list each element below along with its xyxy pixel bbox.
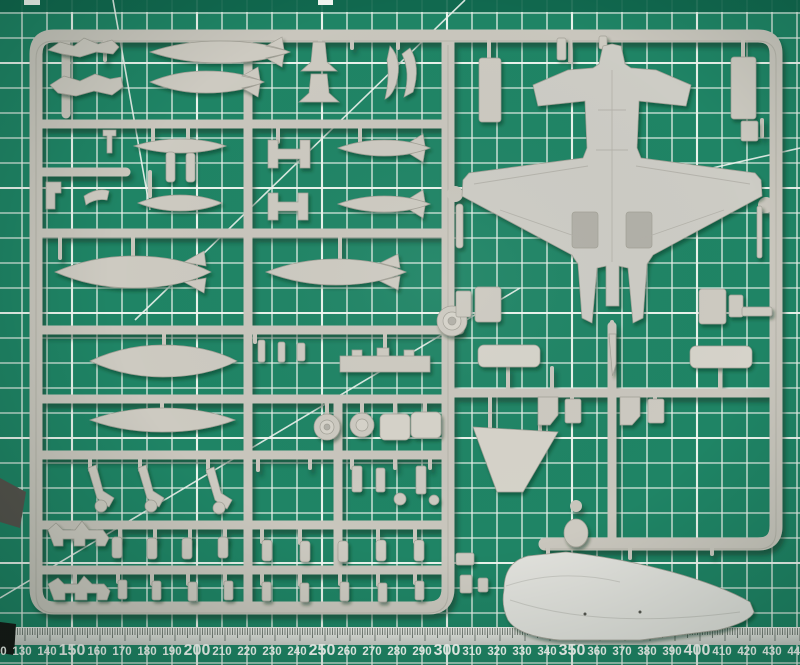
fuselage-rivet-dot <box>639 611 642 614</box>
scale-number: 290 <box>412 646 431 658</box>
scale-number: 200 <box>184 642 211 659</box>
detail-strut-a <box>352 466 362 492</box>
detail-part-f <box>300 541 310 562</box>
scale-number: 310 <box>462 646 481 658</box>
scale-number: 410 <box>712 646 731 658</box>
scale-number: 280 <box>387 646 406 658</box>
aircraft-cockpit-recess-left <box>572 212 598 248</box>
mat-edge-mark <box>24 0 40 5</box>
detail-part-k <box>152 581 161 600</box>
detail-part-l <box>188 582 197 601</box>
detail-part-e <box>262 540 272 561</box>
wheel-b-rim <box>356 419 368 431</box>
scale-number: 180 <box>137 646 156 658</box>
scale-number: 230 <box>262 646 281 658</box>
strut-row-a <box>258 340 265 362</box>
bracket-left-a <box>456 291 471 317</box>
bracket-right-arm <box>742 307 772 316</box>
small-wheel-b <box>429 495 439 505</box>
scale-number: 440 <box>787 646 800 658</box>
scale-number: 240 <box>287 646 306 658</box>
intake-left <box>478 345 540 367</box>
top-stub-a <box>557 38 566 60</box>
detail-part-p <box>340 582 349 601</box>
scale-number: 270 <box>362 646 381 658</box>
gear-wheel-c <box>213 502 225 514</box>
scale-number: 430 <box>762 646 781 658</box>
scene-canvas: 1201301401501601701801902002102202302402… <box>0 0 800 665</box>
antenna-sliver <box>456 204 463 248</box>
detail-strut-b <box>376 468 385 492</box>
gear-wheel-b <box>145 500 157 512</box>
detail-part-m <box>224 581 233 600</box>
scale-number: 300 <box>434 642 461 659</box>
small-bit-b <box>478 578 488 592</box>
detail-part-b <box>147 538 157 559</box>
scale-number: 350 <box>559 642 586 659</box>
nozzle-oval <box>564 519 588 547</box>
aircraft-cockpit-recess-right <box>626 212 652 248</box>
small-bit-a <box>460 575 472 593</box>
scale-number: 320 <box>487 646 506 658</box>
scale-number: 250 <box>309 642 336 659</box>
wheel-a-core <box>324 424 330 430</box>
bracket-right-b <box>729 295 743 317</box>
detail-part-o <box>300 583 309 602</box>
scale-number: 160 <box>87 646 106 658</box>
pylon-strut-b <box>186 153 195 182</box>
cylinder-b <box>411 412 441 438</box>
bracket-right-a <box>699 289 726 324</box>
wheel-hub-large-core <box>448 317 456 325</box>
sprue-gate-blob <box>447 186 463 202</box>
scale-number: 140 <box>37 646 56 658</box>
scale-number: 400 <box>684 642 711 659</box>
detail-part-g <box>338 541 348 562</box>
detail-strut-c <box>416 466 426 494</box>
strut-row-c <box>297 343 305 361</box>
pylon-strut-a <box>166 152 175 182</box>
mat-top-band <box>0 0 800 12</box>
gear-wheel-a <box>95 500 107 512</box>
detail-part-n <box>262 582 271 601</box>
detail-part-i <box>414 540 424 561</box>
stub-part <box>456 553 474 565</box>
cylinder-a <box>380 414 410 440</box>
scale-number: 170 <box>112 646 131 658</box>
pylon-b <box>565 399 581 423</box>
scale-number: 390 <box>662 646 681 658</box>
scale-number: 190 <box>162 646 181 658</box>
scale-number: 120 <box>0 646 7 658</box>
scale-number: 330 <box>512 646 531 658</box>
scale-number: 340 <box>537 646 556 658</box>
scale-number: 380 <box>637 646 656 658</box>
intake-right <box>690 346 752 368</box>
scale-number: 420 <box>737 646 756 658</box>
sprue-gate-blob <box>570 500 582 512</box>
scale-number: 360 <box>587 646 606 658</box>
scale-number: 260 <box>337 646 356 658</box>
detail-part-d <box>218 537 228 558</box>
bracket-left-b <box>475 287 501 322</box>
strut-row-b <box>278 342 285 362</box>
detail-part-r <box>415 581 424 600</box>
pylon-d <box>648 399 664 423</box>
scale-number: 220 <box>237 646 256 658</box>
small-wheel-a <box>394 493 406 505</box>
flap-left <box>479 58 501 122</box>
detail-part-h <box>376 540 386 561</box>
fuselage-rivet-dot <box>584 613 587 616</box>
scale-number: 150 <box>59 642 86 659</box>
detail-part-q <box>378 583 387 602</box>
scale-number: 210 <box>212 646 231 658</box>
detail-part-a <box>112 537 122 558</box>
flap-right <box>731 57 756 119</box>
clip-right <box>741 121 758 141</box>
photo-model-sprue-on-cutting-mat: 1201301401501601701801902002102202302402… <box>0 0 800 665</box>
detail-part-j <box>118 580 127 599</box>
stick-right <box>757 206 762 258</box>
detail-part-c <box>182 538 192 559</box>
scale-number: 370 <box>612 646 631 658</box>
scale-number: 130 <box>12 646 31 658</box>
mat-edge-mark <box>318 0 333 5</box>
